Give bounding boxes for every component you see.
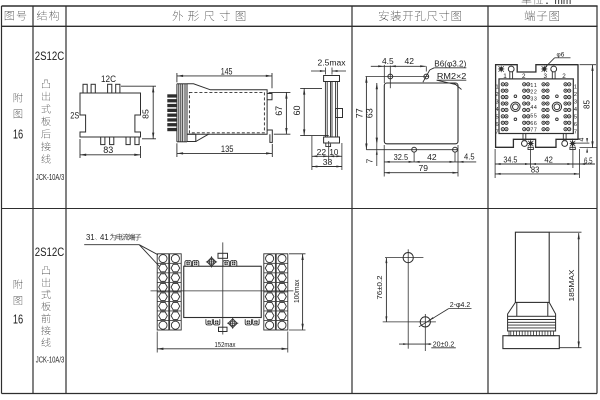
svg-text:3: 3 — [495, 99, 498, 105]
svg-text:32.5: 32.5 — [394, 152, 409, 162]
svg-text:6: 6 — [534, 121, 537, 127]
svg-text:100max: 100max — [292, 279, 301, 303]
svg-text:7: 7 — [574, 130, 577, 136]
svg-text:3: 3 — [574, 99, 577, 105]
svg-text:12C: 12C — [101, 74, 116, 84]
svg-text:4: 4 — [495, 107, 498, 113]
svg-text:RM2×2: RM2×2 — [437, 71, 467, 81]
svg-text:42: 42 — [427, 152, 437, 162]
svg-text:B6(φ3.2): B6(φ3.2) — [434, 59, 466, 69]
svg-text:JCK-10A/3: JCK-10A/3 — [36, 355, 65, 364]
svg-text:2.5max: 2.5max — [318, 58, 346, 67]
svg-text:6: 6 — [574, 122, 577, 128]
svg-text:5: 5 — [534, 113, 537, 119]
svg-text:4: 4 — [574, 107, 577, 113]
svg-text:67: 67 — [274, 106, 284, 116]
svg-text:JCK-10A/3: JCK-10A/3 — [36, 173, 65, 182]
svg-text:76±0.2: 76±0.2 — [377, 275, 384, 299]
svg-text:31: 31 — [86, 233, 95, 242]
svg-text:41: 41 — [100, 233, 109, 242]
svg-text:2: 2 — [534, 89, 537, 95]
svg-text:34.5: 34.5 — [503, 155, 517, 164]
svg-text:2: 2 — [495, 92, 498, 98]
svg-text:4.5: 4.5 — [382, 56, 394, 66]
svg-text:2S12C: 2S12C — [35, 51, 65, 63]
svg-text:77: 77 — [354, 108, 364, 118]
svg-text:5: 5 — [574, 115, 577, 121]
svg-text:185MAX: 185MAX — [567, 270, 576, 302]
svg-text:20±0.2: 20±0.2 — [433, 340, 455, 349]
svg-text:79: 79 — [419, 163, 429, 173]
svg-text:16: 16 — [13, 128, 23, 142]
svg-text:83: 83 — [103, 145, 113, 155]
svg-text:1: 1 — [534, 83, 537, 89]
svg-text:2S12C: 2S12C — [35, 247, 65, 259]
svg-text:10: 10 — [329, 147, 338, 157]
svg-text:42: 42 — [544, 155, 553, 164]
svg-text:152max: 152max — [215, 340, 236, 349]
svg-text:16: 16 — [13, 312, 23, 326]
svg-text:7: 7 — [534, 127, 537, 133]
svg-text:4: 4 — [578, 137, 585, 141]
svg-text:6: 6 — [495, 122, 498, 128]
svg-text:135: 135 — [221, 144, 234, 154]
svg-text:42: 42 — [405, 56, 415, 66]
svg-text:38: 38 — [323, 157, 333, 167]
svg-text:7: 7 — [495, 130, 498, 136]
svg-text:145: 145 — [221, 66, 233, 76]
svg-text:60: 60 — [292, 106, 302, 116]
svg-text:6.5: 6.5 — [584, 156, 593, 165]
svg-text:：mm: ：mm — [545, 0, 572, 7]
svg-text:3: 3 — [534, 96, 537, 102]
svg-text:4.5: 4.5 — [464, 152, 475, 162]
svg-text:4: 4 — [534, 105, 537, 111]
svg-text:85: 85 — [583, 99, 592, 109]
svg-text:2S: 2S — [70, 111, 79, 121]
svg-text:7: 7 — [364, 158, 374, 163]
svg-text:85: 85 — [141, 109, 151, 119]
svg-text:1: 1 — [574, 84, 577, 90]
svg-text:83: 83 — [531, 165, 540, 174]
svg-text:5: 5 — [495, 115, 498, 121]
svg-text:63: 63 — [365, 108, 375, 118]
svg-text:2: 2 — [574, 92, 577, 98]
svg-text:2-φ4.2: 2-φ4.2 — [450, 300, 471, 309]
svg-text:1: 1 — [495, 84, 498, 90]
svg-text:22: 22 — [317, 147, 327, 157]
